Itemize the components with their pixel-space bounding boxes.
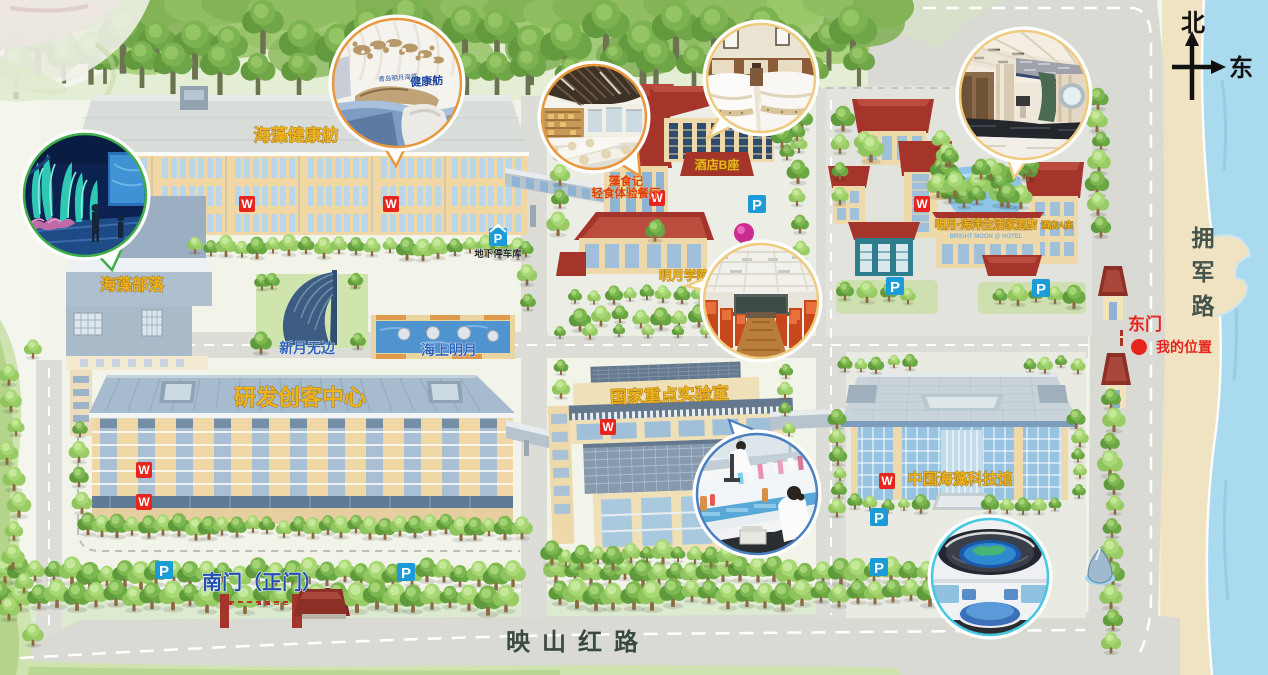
- svg-text:国家重点实验室: 国家重点实验室: [610, 383, 730, 407]
- svg-text:酒店A座: 酒店A座: [1041, 220, 1073, 230]
- svg-text:W: W: [138, 495, 150, 509]
- svg-text:W: W: [916, 197, 928, 211]
- svg-text:映山红路: 映山红路: [506, 628, 650, 656]
- svg-text:军: 军: [1192, 259, 1215, 285]
- svg-text:海藻健康舫: 海藻健康舫: [254, 125, 339, 145]
- svg-text:P: P: [890, 279, 900, 296]
- svg-text:轻食体验餐厅: 轻食体验餐厅: [592, 186, 661, 200]
- svg-text:W: W: [241, 197, 253, 211]
- svg-text:地下停车库: 地下停车库: [474, 248, 522, 260]
- svg-text:BRIGHT MOON @ HOTEL: BRIGHT MOON @ HOTEL: [950, 234, 1023, 240]
- svg-text:酒店B座: 酒店B座: [695, 157, 740, 172]
- svg-text:研发创客中心: 研发创客中心: [234, 385, 366, 410]
- svg-text:我的位置: 我的位置: [1156, 339, 1212, 355]
- svg-text:拥: 拥: [1192, 225, 1215, 251]
- svg-text:P: P: [752, 197, 762, 214]
- svg-text:P: P: [494, 231, 503, 246]
- svg-text:中国海藻科技馆: 中国海藻科技馆: [907, 470, 1012, 488]
- svg-text:P: P: [401, 565, 411, 582]
- svg-text:北: 北: [1181, 10, 1205, 37]
- svg-text:南门（正门）: 南门（正门）: [202, 570, 322, 594]
- svg-text:P: P: [159, 563, 169, 580]
- svg-text:W: W: [602, 420, 614, 434]
- svg-text:W: W: [138, 463, 150, 477]
- svg-text:W: W: [881, 474, 893, 488]
- svg-text:新月无边: 新月无边: [279, 340, 336, 356]
- svg-text:东门: 东门: [1128, 314, 1162, 334]
- svg-text:东: 东: [1229, 54, 1253, 82]
- svg-text:W: W: [385, 197, 397, 211]
- svg-text:海藻部落: 海藻部落: [100, 275, 165, 294]
- svg-text:P: P: [874, 560, 884, 577]
- svg-text:明月·海洋生活家酒店: 明月·海洋生活家酒店: [935, 217, 1038, 231]
- svg-text:路: 路: [1192, 293, 1216, 319]
- svg-text:海上明月: 海上明月: [421, 342, 477, 358]
- svg-text:P: P: [874, 510, 884, 527]
- svg-text:P: P: [1036, 281, 1046, 298]
